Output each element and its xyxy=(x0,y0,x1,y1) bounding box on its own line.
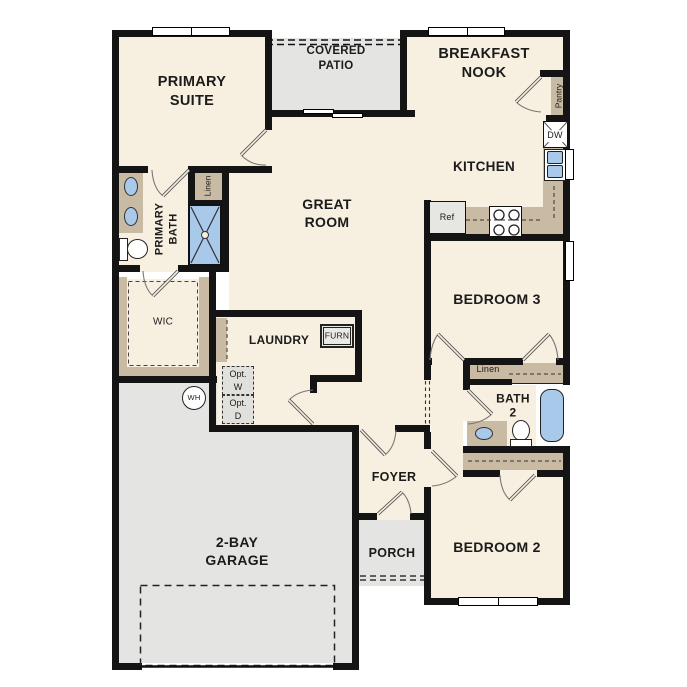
sink-basin xyxy=(124,207,138,226)
wall xyxy=(352,513,377,520)
wall xyxy=(540,70,570,77)
fixture-label-dw: DW xyxy=(546,130,563,142)
bath2-sink-basin xyxy=(475,427,493,440)
wall xyxy=(209,425,317,432)
wic-door-gap xyxy=(140,265,178,272)
fixture-label-linen-hall: Linen xyxy=(476,364,499,376)
wall xyxy=(112,166,148,173)
room-label-bedroom3: BEDROOM 3 xyxy=(453,290,541,308)
wall xyxy=(112,30,119,173)
room-label-primary-bath: PRIMARY BATH xyxy=(153,203,182,255)
wall xyxy=(463,379,512,385)
opt-dryer-box: Opt. D xyxy=(222,395,254,424)
wall xyxy=(310,375,317,393)
patio-slider-door xyxy=(332,113,363,118)
room-label-breakfast-nook: BREAKFAST NOOK xyxy=(438,45,529,83)
foyer-door-gap xyxy=(359,425,395,432)
room-label-wic: WIC xyxy=(153,316,173,329)
wall xyxy=(395,425,430,432)
wall xyxy=(400,30,407,117)
wall xyxy=(222,199,229,272)
wall xyxy=(463,378,470,390)
kitchen-sink-basin xyxy=(547,151,563,164)
bath2-door-gap xyxy=(463,390,470,421)
window-divider xyxy=(191,28,192,35)
room-label-laundry: LAUNDRY xyxy=(249,333,309,349)
shower-fixture xyxy=(188,204,222,266)
bed2-closet-gap xyxy=(500,470,537,477)
cased-opening-gap xyxy=(424,380,431,425)
wall xyxy=(556,358,570,365)
room-label-kitchen: KITCHEN xyxy=(453,158,515,176)
wall xyxy=(352,425,359,670)
wall xyxy=(355,310,362,382)
floor-plan: Opt. W Opt. D xyxy=(0,0,687,687)
window xyxy=(152,27,230,36)
room-label-porch: PORCH xyxy=(369,545,416,561)
window-divider xyxy=(467,28,468,35)
sink-basin xyxy=(124,177,138,196)
bathtub-fixture xyxy=(540,389,564,442)
window xyxy=(428,27,505,36)
laundry-cabinet xyxy=(216,318,227,362)
window xyxy=(565,149,574,180)
room-label-great-room: GREAT ROOM xyxy=(302,195,351,231)
hall-floor xyxy=(317,382,362,425)
wall xyxy=(178,265,225,272)
room-label-covered-patio: COVERED PATIO xyxy=(307,44,366,74)
bath-door-gap xyxy=(148,166,190,173)
room-label-foyer: FOYER xyxy=(372,469,417,485)
wic-shelf-left xyxy=(119,277,127,372)
bed3-closet-shelf xyxy=(507,363,563,384)
wall xyxy=(463,446,570,453)
front-door-gap xyxy=(377,513,410,520)
wall xyxy=(112,272,119,383)
garage-floor-left xyxy=(119,383,217,663)
wall xyxy=(112,376,119,670)
bedroom2-floor xyxy=(431,472,563,598)
wall xyxy=(112,663,142,670)
room-label-bath2: BATH 2 xyxy=(496,392,530,421)
opt-washer-label: Opt. W xyxy=(229,369,246,392)
toilet-fixture xyxy=(127,239,148,259)
bed2-entry-gap xyxy=(424,449,431,487)
fixture-label-wh: WH xyxy=(188,393,201,403)
wall xyxy=(112,173,119,272)
wall xyxy=(209,310,216,432)
toilet-fixture xyxy=(512,420,530,441)
wall xyxy=(537,470,563,477)
patio-slider-door xyxy=(303,109,334,114)
room-label-primary-suite: PRIMARY SUITE xyxy=(158,73,226,111)
wall xyxy=(424,432,431,449)
wall xyxy=(310,375,362,382)
range-fixture xyxy=(489,206,522,237)
wall xyxy=(424,487,431,605)
wic-shelf-right xyxy=(199,277,209,372)
window xyxy=(565,241,574,281)
window xyxy=(458,597,538,606)
kitchen-sink-basin xyxy=(547,165,563,178)
room-label-garage: 2-BAY GARAGE xyxy=(205,533,268,569)
window-divider xyxy=(498,598,499,605)
fixture-label-pantry: Pantry xyxy=(553,84,564,109)
toilet-fixture xyxy=(510,439,532,447)
opt-dryer-label: Opt. D xyxy=(229,398,246,421)
wall xyxy=(112,376,217,383)
wall xyxy=(333,663,359,670)
wall xyxy=(190,166,272,173)
wall xyxy=(424,358,432,365)
wall xyxy=(209,310,362,317)
opt-washer-box: Opt. W xyxy=(222,366,254,395)
bed2-closet-shelf xyxy=(463,453,563,470)
fixture-label-linen-primary: Linen xyxy=(202,176,213,197)
room-label-bedroom2: BEDROOM 2 xyxy=(453,538,541,556)
wall xyxy=(463,470,500,477)
fixture-label-furn: FURN xyxy=(325,330,349,341)
wall xyxy=(112,265,140,272)
nook-gap xyxy=(415,110,424,117)
fixture-label-ref: Ref xyxy=(440,212,455,224)
